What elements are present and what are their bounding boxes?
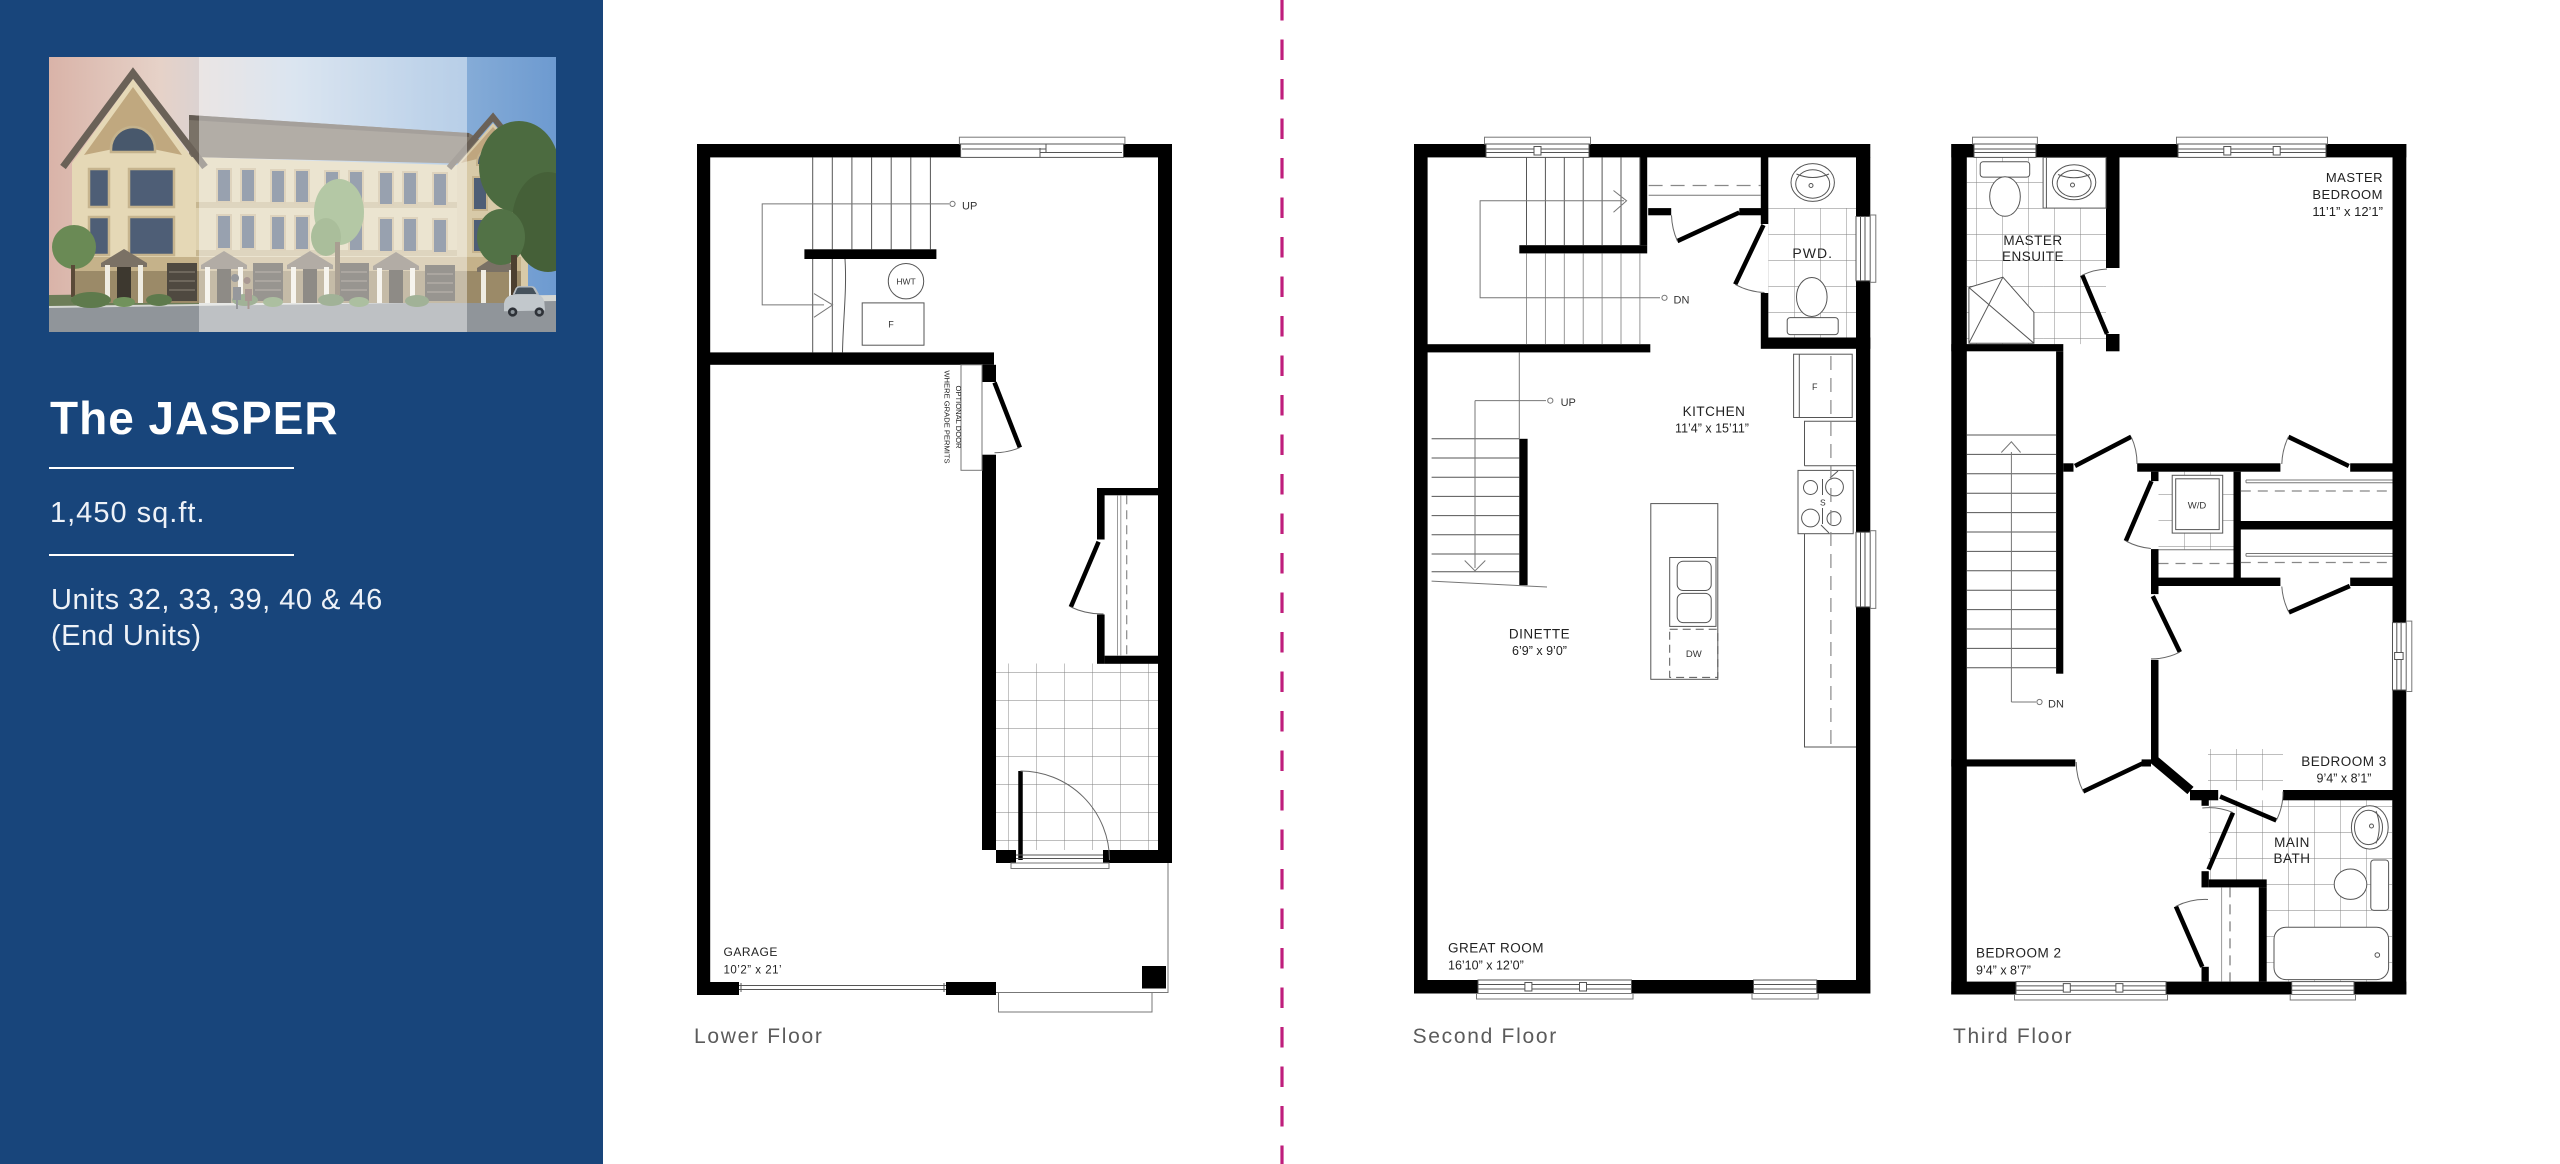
svg-text:HWT: HWT xyxy=(896,277,915,287)
svg-text:KITCHEN: KITCHEN xyxy=(1683,404,1746,419)
svg-text:11’4” x 15’11”: 11’4” x 15’11” xyxy=(1675,422,1749,436)
svg-text:W/D: W/D xyxy=(2188,501,2207,512)
svg-text:DW: DW xyxy=(1686,649,1702,660)
svg-text:DN: DN xyxy=(1674,294,1690,306)
svg-text:11’1” x 12’1”: 11’1” x 12’1” xyxy=(2312,204,2383,219)
svg-text:F: F xyxy=(1812,382,1818,392)
svg-text:OPTIONAL DOOR: OPTIONAL DOOR xyxy=(954,385,963,449)
svg-text:9’4” x 8’1”: 9’4” x 8’1” xyxy=(2317,772,2372,786)
svg-text:DINETTE: DINETTE xyxy=(1509,627,1570,642)
svg-text:PWD.: PWD. xyxy=(1792,245,1833,261)
svg-text:BEDROOM: BEDROOM xyxy=(2312,187,2383,202)
svg-text:ENSUITE: ENSUITE xyxy=(2002,249,2064,264)
svg-text:F: F xyxy=(888,320,894,330)
svg-text:DN: DN xyxy=(2048,699,2064,711)
svg-text:BEDROOM 3: BEDROOM 3 xyxy=(2301,754,2387,769)
svg-text:Lower Floor: Lower Floor xyxy=(694,1025,824,1048)
svg-text:UP: UP xyxy=(962,201,977,213)
svg-text:BEDROOM 2: BEDROOM 2 xyxy=(1976,946,2062,961)
svg-text:GARAGE: GARAGE xyxy=(724,945,778,959)
svg-text:16’10” x 12’0”: 16’10” x 12’0” xyxy=(1448,959,1524,973)
svg-text:Third Floor: Third Floor xyxy=(1953,1025,2073,1048)
svg-text:GREAT ROOM: GREAT ROOM xyxy=(1448,941,1544,956)
svg-text:MAIN: MAIN xyxy=(2274,835,2310,850)
svg-text:WHERE GRADE PERMITS: WHERE GRADE PERMITS xyxy=(943,370,952,463)
svg-text:9’4” x 8’7”: 9’4” x 8’7” xyxy=(1976,964,2031,978)
svg-text:BATH: BATH xyxy=(2273,851,2310,866)
svg-text:S: S xyxy=(1820,498,1826,508)
svg-text:MASTER: MASTER xyxy=(2003,233,2062,248)
svg-text:MASTER: MASTER xyxy=(2326,170,2383,185)
svg-text:Second Floor: Second Floor xyxy=(1413,1025,1558,1048)
svg-text:UP: UP xyxy=(1561,397,1576,409)
svg-text:6’9” x 9’0”: 6’9” x 9’0” xyxy=(1512,644,1567,658)
svg-text:10’2” x 21’: 10’2” x 21’ xyxy=(724,965,783,977)
